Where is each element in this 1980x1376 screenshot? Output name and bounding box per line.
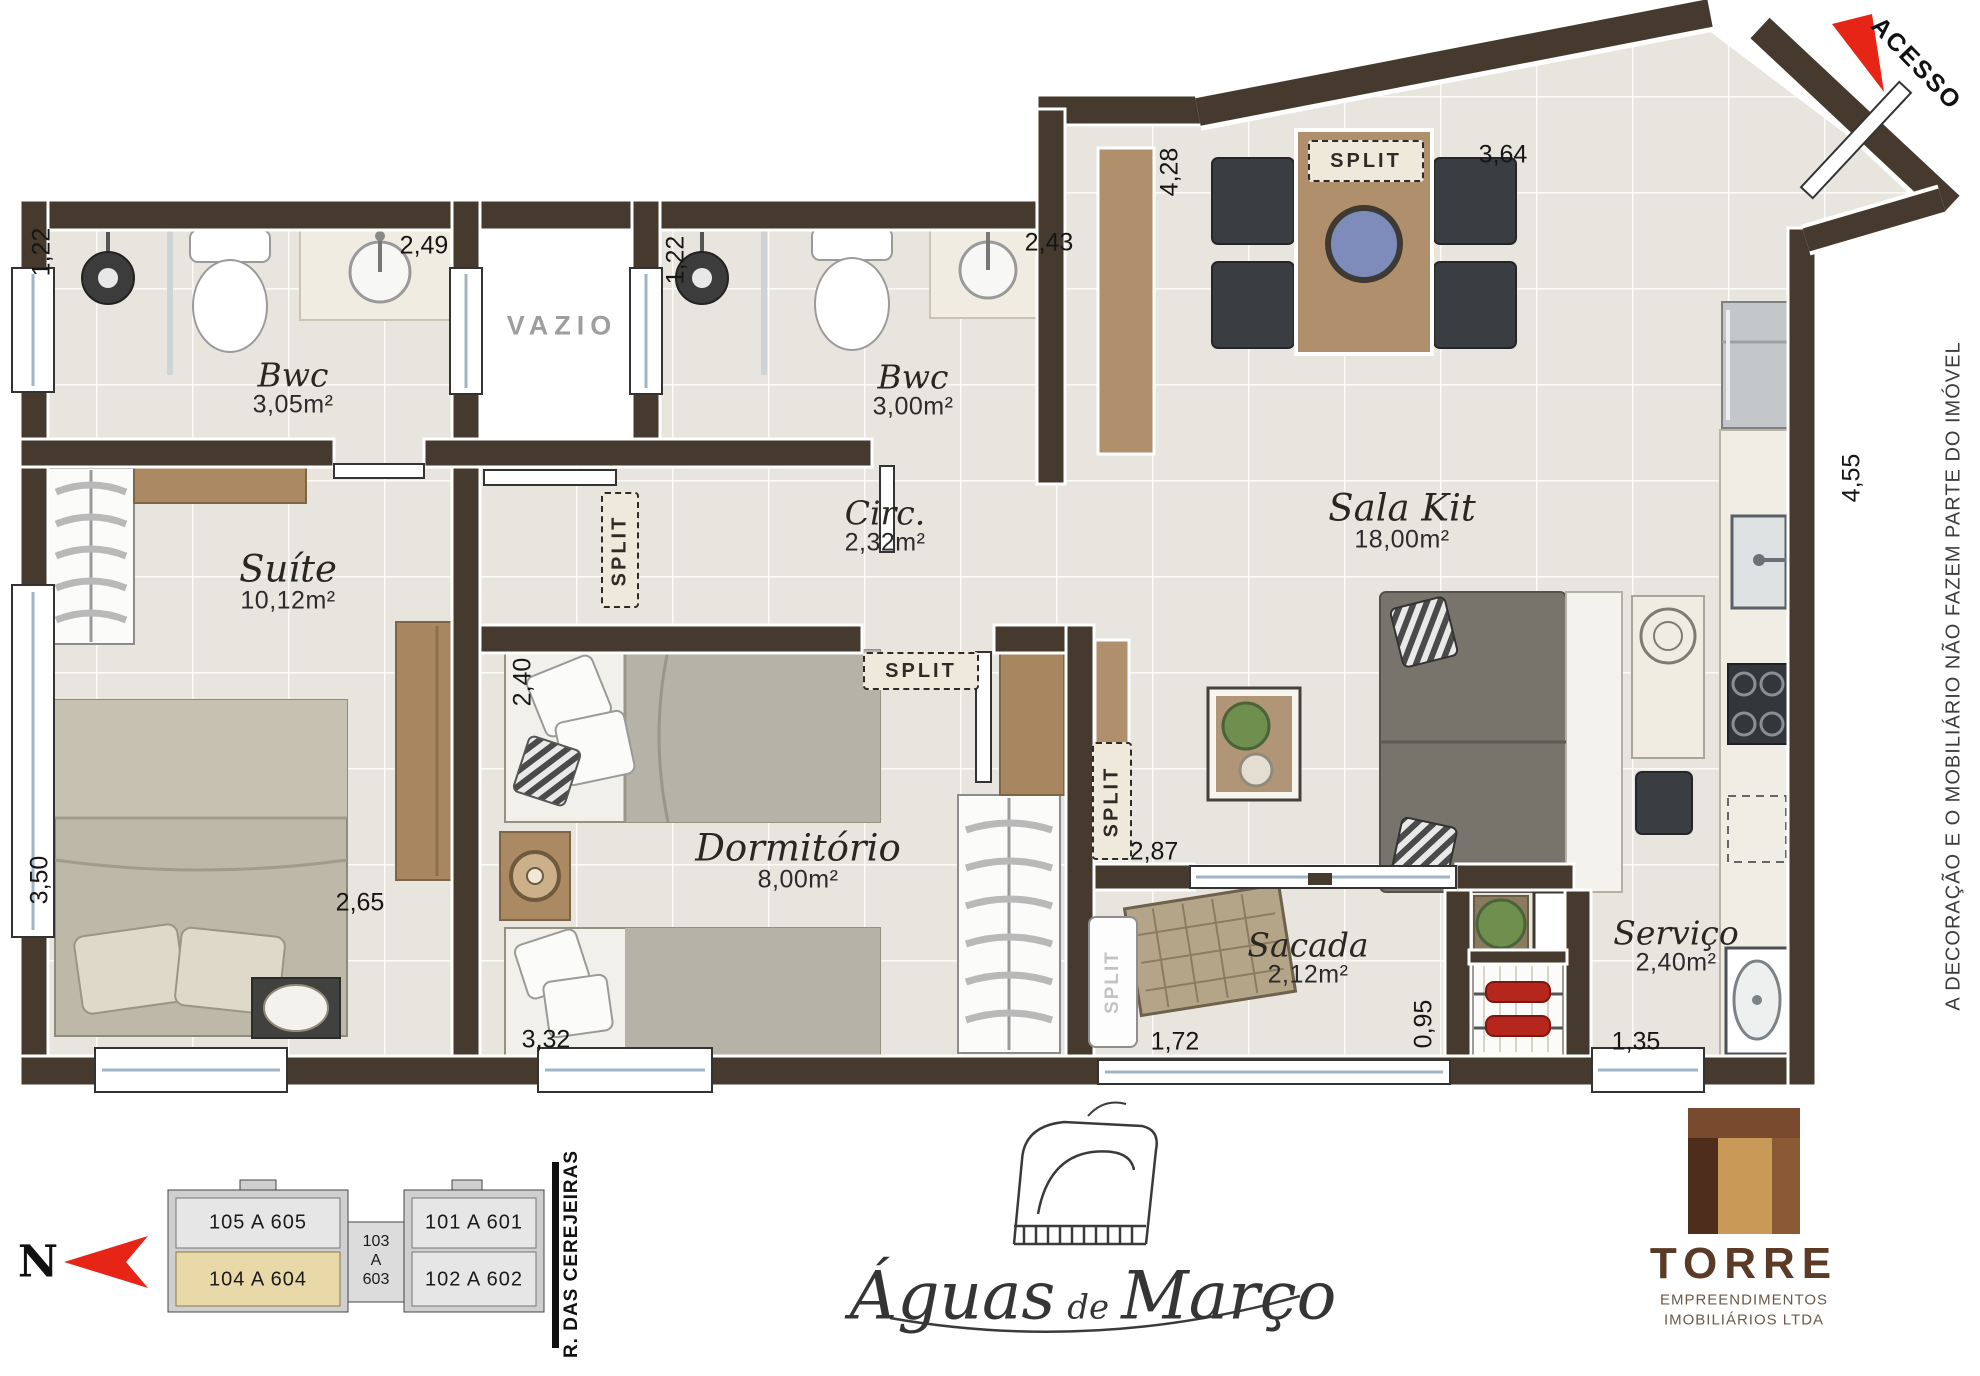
dining-chair <box>1434 158 1516 244</box>
room-label-servico: Serviço 2,40m² <box>1613 916 1738 975</box>
room-name: Sala Kit <box>1328 489 1475 526</box>
toilet-tank-icon <box>812 228 892 260</box>
dim-dorm-length: 3,32 <box>522 1026 571 1055</box>
plant-icon <box>1223 703 1269 749</box>
keyplan-unit-label-105: 105 A 605 <box>209 1212 307 1235</box>
wall-sacada-top-2 <box>1456 864 1574 890</box>
project-logo: Águas de Março <box>850 1258 1337 1335</box>
keyplan-notch <box>240 1180 276 1190</box>
keyplan-core-label-2: A <box>371 1252 382 1270</box>
barbecue-grill <box>1472 962 1564 1056</box>
project-name-word2: de <box>1067 1288 1109 1328</box>
builder-line2: IMOBILIÁRIOS LTDA <box>1664 1312 1824 1329</box>
room-name: Dormitório <box>695 829 901 866</box>
street-line <box>552 1162 559 1348</box>
dim-suite-depth: 3,50 <box>26 856 55 905</box>
builder-line1: EMPREENDIMENTOS <box>1660 1292 1828 1309</box>
wall-void-bwc2-bottom <box>424 439 872 467</box>
tray <box>1240 754 1272 786</box>
room-name: Bwc <box>253 358 334 391</box>
closet-upper <box>1000 653 1064 795</box>
split-unit-circ: SPLIT <box>601 492 639 608</box>
stool <box>1636 772 1692 834</box>
project-name-word1: Águas <box>850 1258 1056 1335</box>
dining-chair <box>1212 262 1294 348</box>
fridge-icon <box>1722 302 1788 428</box>
wall-sacada-servico <box>1445 890 1471 1056</box>
keyplan-notch <box>452 1180 482 1190</box>
split-label: SPLIT <box>1101 765 1124 837</box>
wall-bwc1-bottom <box>20 439 334 467</box>
keyplan-drawing <box>64 1162 559 1348</box>
toilet-bowl-icon <box>193 260 267 352</box>
vazio-label: VAZIO <box>507 311 618 342</box>
wall-right <box>1788 228 1816 1086</box>
split-unit-dining: SPLIT <box>1308 140 1424 182</box>
split-unit-sala: SPLIT <box>1092 742 1132 860</box>
meat-skewer <box>1486 982 1550 1002</box>
wall-bbq-right <box>1565 890 1591 1056</box>
room-name: Circ. <box>845 496 926 529</box>
keyplan-unit-label-102: 102 A 602 <box>425 1269 523 1292</box>
dim-bwc1-length: 2,49 <box>400 232 449 261</box>
dim-bwc1-width: 1,22 <box>28 228 57 277</box>
dining-chair <box>1212 158 1294 244</box>
room-area: 18,00m² <box>1328 526 1475 552</box>
toilet-bowl-icon <box>815 258 889 350</box>
wall-dorm-top <box>480 625 862 653</box>
split-label: SPLIT <box>609 514 632 586</box>
room-label-sala-kit: Sala Kit 18,00m² <box>1328 489 1475 552</box>
dim-sala-depth: 4,28 <box>1156 148 1185 197</box>
room-label-suite: Suíte 10,12m² <box>239 550 337 613</box>
room-area: 3,05m² <box>253 391 334 417</box>
wall-suite-right <box>452 467 480 1056</box>
centerpiece-bowl-icon <box>1328 208 1400 280</box>
room-area: 3,00m² <box>873 393 954 419</box>
dim-dorm-width: 2,40 <box>509 658 538 707</box>
sofa-back <box>1566 592 1622 892</box>
project-name-word3: Março <box>1121 1258 1336 1335</box>
room-name: Serviço <box>1613 916 1738 949</box>
dim-servico-width: 1,35 <box>1612 1028 1661 1057</box>
pillow <box>73 923 187 1015</box>
room-label-circ: Circ. 2,32m² <box>845 496 926 555</box>
keyplan-unit-label-101: 101 A 601 <box>425 1212 523 1235</box>
disclaimer-text: A DECORAÇÃO E O MOBILIÁRIO NÃO FAZEM PAR… <box>1943 341 1966 1010</box>
decor-plate-icon <box>1641 609 1695 663</box>
floor-plan-page: Bwc 3,05m² Bwc 3,00m² Suíte 10,12m² Circ… <box>0 0 1980 1376</box>
room-area: 2,40m² <box>1613 949 1738 975</box>
split-label: SPLIT <box>885 660 957 683</box>
dim-churrasqueira-width: 0,95 <box>1410 1000 1439 1049</box>
dim-sala-width: 3,64 <box>1479 141 1528 170</box>
keyplan-unit-label-104: 104 A 604 <box>209 1269 307 1292</box>
dim-sacada-width: 1,72 <box>1151 1028 1200 1057</box>
room-area: 2,32m² <box>845 529 926 555</box>
room-area: 10,12m² <box>239 587 337 613</box>
floor-plan-drawing <box>0 0 1980 1376</box>
toilet-tank-icon <box>190 230 270 262</box>
split-unit-dorm-door: SPLIT <box>863 652 979 690</box>
dining-chair <box>1434 262 1516 348</box>
split-condenser-sacada: SPLIT <box>1088 916 1138 1048</box>
dim-sala-lower-width: 2,87 <box>1130 838 1179 867</box>
builder-name: TORRE <box>1650 1239 1838 1289</box>
room-label-dormitorio: Dormitório 8,00m² <box>695 829 901 892</box>
torre-logo-icon <box>1688 1108 1800 1234</box>
dim-suite-width: 2,65 <box>336 889 385 918</box>
door-bwc1 <box>334 464 424 478</box>
door-suite <box>484 470 616 485</box>
room-label-sacada: Sacada 2,12m² <box>1247 928 1368 987</box>
plant-icon <box>1477 900 1525 948</box>
north-arrow-icon <box>64 1236 148 1288</box>
room-area: 8,00m² <box>695 866 901 892</box>
wall-bottom <box>20 1056 1816 1086</box>
street-label: R. DAS CEREJEIRAS <box>561 1150 583 1358</box>
room-name: Suíte <box>239 550 337 587</box>
sideboard <box>1098 148 1154 454</box>
dim-kitchen-depth: 4,55 <box>1838 454 1867 503</box>
wall-niche-bottom <box>1469 950 1567 964</box>
dim-bwc2-length: 2,43 <box>1025 229 1074 258</box>
wall-top <box>20 200 1065 230</box>
keyplan-core-label-1: 103 <box>363 1233 390 1251</box>
room-name: Bwc <box>873 360 954 393</box>
split-label: SPLIT <box>1330 150 1402 173</box>
room-label-bwc2: Bwc 3,00m² <box>873 360 954 419</box>
room-name: Sacada <box>1247 928 1368 961</box>
wall-sacada-top-1 <box>1094 864 1194 890</box>
meat-skewer <box>1486 1016 1550 1036</box>
dresser <box>134 465 306 503</box>
north-label: N <box>18 1237 58 1288</box>
sliding-door-handle <box>1308 873 1332 885</box>
dim-bwc2-width: 1,22 <box>662 236 691 285</box>
piano-sketch-icon <box>1014 1103 1157 1245</box>
keyplan-core-label-3: 603 <box>363 1271 390 1289</box>
split-label: SPLIT <box>1102 950 1124 1014</box>
room-label-bwc1: Bwc 3,05m² <box>253 358 334 417</box>
wall-sala-left <box>1037 109 1065 484</box>
room-area: 2,12m² <box>1247 961 1368 987</box>
puff <box>264 985 328 1031</box>
